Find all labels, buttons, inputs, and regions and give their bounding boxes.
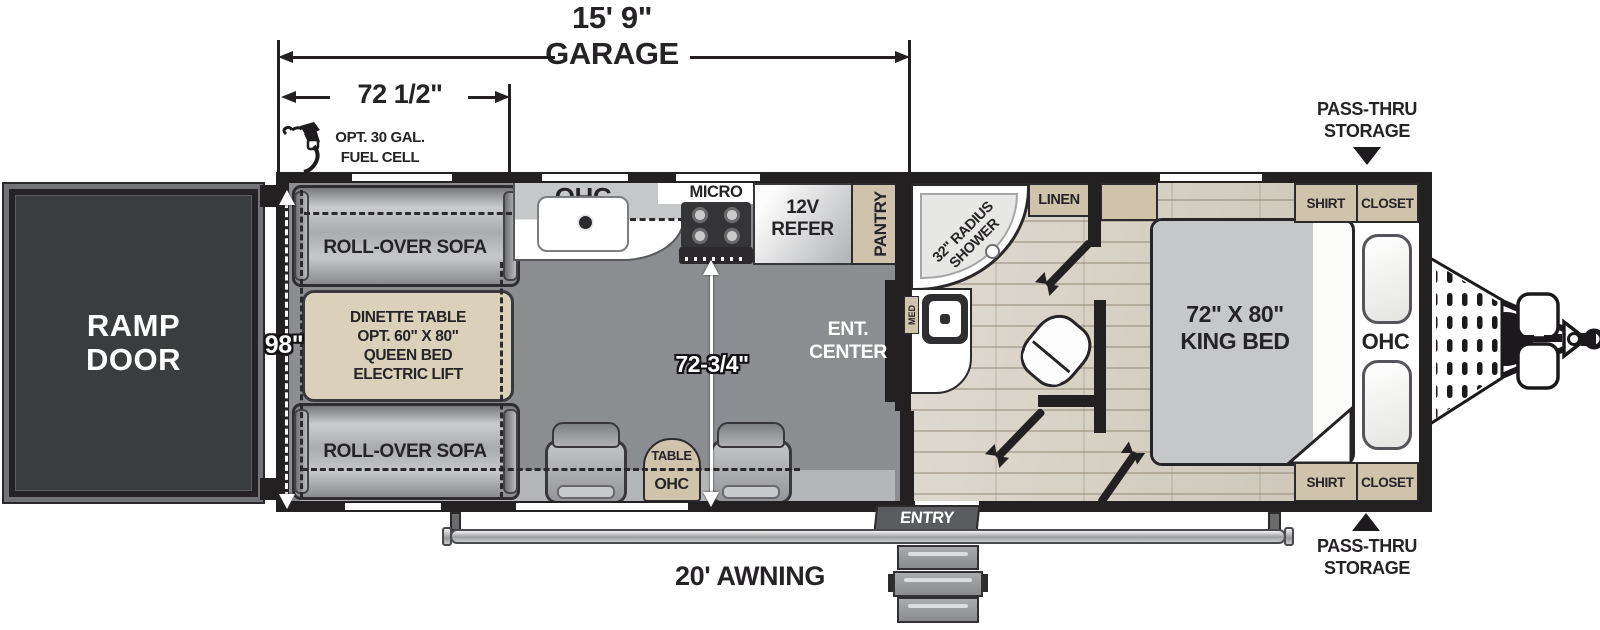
dinette-label-line1: DINETTE TABLE	[350, 308, 466, 327]
living-width-dim-line	[710, 266, 713, 502]
bath-sink	[922, 294, 968, 344]
bedroom-ohc-label: OHC	[1352, 330, 1419, 353]
refer-label-line1: 12V	[755, 197, 850, 219]
trailer-hitch-icon	[1428, 196, 1600, 436]
ramp-door-label-line1: RAMP	[87, 309, 180, 343]
pass-thru-bottom-line2: STORAGE	[1302, 558, 1432, 579]
living-width-arrow-up	[703, 260, 719, 275]
pillow	[1362, 360, 1412, 450]
rollover-sofa-top-label: ROLL-OVER SOFA	[309, 238, 501, 258]
kitchen-sink	[537, 196, 629, 252]
slide-dash-top	[304, 212, 512, 215]
stove-icon	[681, 202, 751, 249]
bath-sink-drain	[940, 314, 950, 324]
rollover-sofa-top: ROLL-OVER SOFA	[292, 185, 520, 287]
step-tread	[908, 604, 968, 608]
refer-label-line2: REFER	[755, 219, 850, 241]
window	[542, 172, 628, 183]
entry-step	[893, 571, 983, 597]
ent-center-label-line2: CENTER	[806, 341, 890, 364]
ramp-door-frame: RAMP DOOR	[9, 189, 258, 497]
living-width-dim: 72-3/4"	[662, 352, 762, 376]
window	[516, 501, 688, 512]
step-tread	[908, 552, 968, 556]
bath-wall-horizontal	[1038, 395, 1106, 407]
bath-vanity	[910, 288, 972, 394]
dinette-label-line2: OPT. 60" X 80"	[357, 327, 458, 346]
living-width-arrow-down	[703, 492, 719, 507]
recliner-chair-left	[545, 422, 627, 504]
awning-tube	[450, 529, 1286, 544]
chair-back	[552, 422, 620, 448]
ramp-door-label-line2: DOOR	[86, 343, 181, 377]
dinette-label-line3: QUEEN BED	[364, 346, 453, 365]
sofa-width-dim: 72 1/2"	[330, 80, 470, 109]
pass-thru-bottom-line1: PASS-THRU	[1302, 536, 1432, 557]
king-bed-label-line1: 72" X 80"	[1161, 301, 1309, 328]
rollover-sofa-bottom-label: ROLL-OVER SOFA	[309, 442, 501, 462]
window	[345, 501, 441, 512]
shirt-closet-bottom-left: SHIRT	[1296, 464, 1358, 500]
awning-label: 20' AWNING	[630, 562, 870, 591]
bedroom-corner-cabinet	[1100, 183, 1158, 221]
microwave-label: MICRO	[676, 184, 756, 201]
medicine-cabinet: MED	[904, 296, 919, 334]
pantry-label: PANTRY	[871, 191, 891, 257]
ramp-door-panel: RAMP DOOR	[15, 195, 252, 491]
garage-width-dim: 98"	[252, 332, 316, 359]
floorplan-canvas: 15' 9" GARAGE 72 1/2" OPT. 30 GAL. FUEL …	[0, 0, 1600, 630]
shirt-closet-top-left: SHIRT	[1296, 185, 1358, 221]
garage-dim-line-right	[690, 56, 896, 59]
king-bed: 72" X 80" KING BED	[1150, 218, 1355, 466]
chair-back	[717, 422, 785, 448]
sofa-armrest	[503, 409, 518, 494]
garage-width-arrow-up	[279, 190, 295, 205]
window	[1160, 172, 1262, 183]
shirt-closet-bottom-right: CLOSET	[1358, 464, 1418, 500]
ent-center-label-line1: ENT.	[806, 318, 890, 341]
sofa-dim-line-right	[468, 96, 496, 99]
pass-thru-top-line2: STORAGE	[1302, 121, 1432, 142]
entry-door: ENTRY	[874, 505, 981, 531]
wall-right	[1419, 172, 1432, 512]
bed-blanket-fold	[1285, 403, 1357, 467]
fuel-option-line1: OPT. 30 GAL.	[328, 130, 432, 146]
window	[352, 172, 452, 183]
pass-thru-top-line1: PASS-THRU	[1302, 99, 1432, 120]
counter-dash	[630, 218, 684, 221]
entry-wall-stub	[900, 411, 914, 505]
med-label: MED	[907, 305, 917, 325]
linen-label: LINEN	[1038, 192, 1080, 208]
entry-label: ENTRY	[899, 509, 955, 528]
window	[676, 172, 760, 183]
table-label: TABLE	[645, 449, 698, 463]
pass-thru-top-arrow-icon	[1353, 147, 1381, 165]
entry-step	[897, 545, 979, 570]
dinette-table: DINETTE TABLE OPT. 60" X 80" QUEEN BED E…	[302, 290, 514, 402]
step-tread	[904, 578, 972, 582]
bath-wall-top	[1088, 183, 1101, 247]
dinette-label-line4: ELECTRIC LIFT	[353, 365, 462, 384]
garage-length-dim: 15' 9"	[512, 2, 712, 35]
ramp-door: RAMP DOOR	[2, 182, 265, 504]
bath-wall-center	[1094, 300, 1106, 433]
shirt-closet-bottom: SHIRT CLOSET	[1294, 462, 1419, 502]
garage-dim-line-left	[291, 56, 555, 59]
sofa-dim-ext-right	[508, 84, 511, 174]
slide-dash-right	[500, 262, 503, 498]
rollover-sofa-bottom: ROLL-OVER SOFA	[292, 403, 520, 500]
fuel-option-line2: FUEL CELL	[328, 150, 432, 166]
garage-word-label: GARAGE	[512, 38, 712, 71]
chair-footrest	[557, 485, 615, 499]
shirt-closet-top-right: CLOSET	[1358, 185, 1418, 221]
slide-dash-bottom	[302, 468, 800, 471]
table-ohc-label: OHC	[645, 477, 698, 494]
sofa-dim-line-left	[294, 96, 330, 99]
linen-closet: LINEN	[1028, 183, 1090, 217]
king-bed-label-line2: KING BED	[1161, 328, 1309, 355]
refrigerator: 12V REFER	[753, 183, 853, 265]
wall-bottom	[276, 501, 1432, 512]
garage-dim-ext-right	[908, 40, 911, 173]
faucet-icon	[577, 214, 594, 231]
entry-step	[897, 597, 979, 623]
garage-width-arrow-down	[279, 494, 295, 509]
shirt-closet-top: SHIRT CLOSET	[1294, 183, 1419, 223]
chair-footrest	[722, 485, 780, 499]
pillow	[1362, 234, 1412, 324]
pass-thru-bottom-arrow-icon	[1352, 513, 1380, 531]
recliner-chair-right	[710, 422, 792, 504]
fuel-pump-icon	[280, 120, 332, 176]
